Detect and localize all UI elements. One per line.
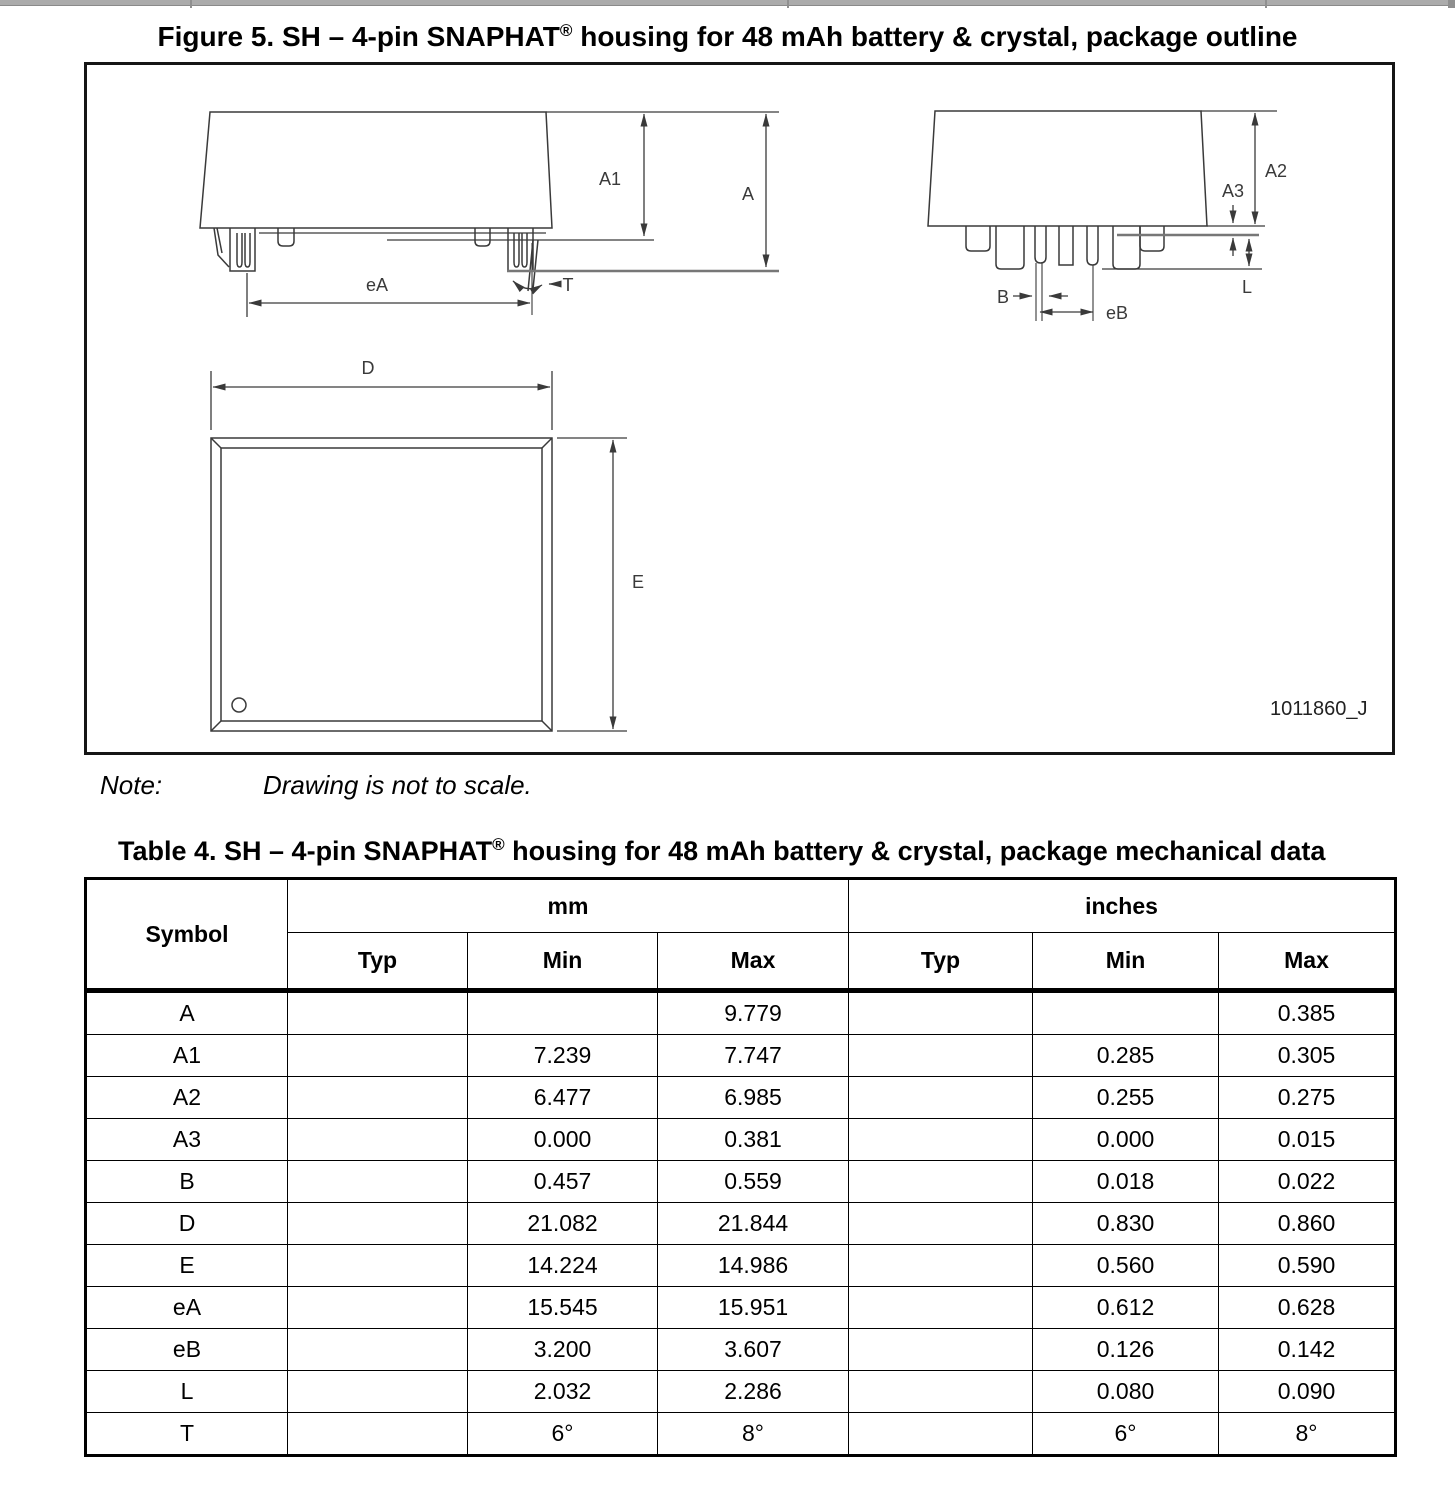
value-cell: 0.080 [1033, 1371, 1219, 1413]
strip-tick [190, 0, 192, 8]
value-cell: 0.000 [1033, 1119, 1219, 1161]
value-cell: 0.018 [1033, 1161, 1219, 1203]
value-cell: 14.986 [658, 1245, 849, 1287]
symbol-cell: E [86, 1245, 288, 1287]
strip-tick [787, 0, 789, 8]
value-cell: 9.779 [658, 991, 849, 1035]
header-symbol: Symbol [86, 879, 288, 991]
header-mm-max: Max [658, 933, 849, 991]
value-cell: 0.142 [1219, 1329, 1396, 1371]
value-cell [288, 1203, 468, 1245]
symbol-cell: B [86, 1161, 288, 1203]
dim-label-a1: A1 [599, 169, 621, 189]
dim-label-eb: eB [1106, 303, 1128, 323]
table-header: Symbol mm inches Typ Min Max Typ Min Max [86, 879, 1396, 991]
value-cell [1033, 991, 1219, 1035]
figure-title: Figure 5. SH – 4-pin SNAPHAT® housing fo… [0, 21, 1455, 53]
end-view-dimensions [1013, 111, 1277, 312]
header-row-groups: Symbol mm inches [86, 879, 1396, 933]
value-cell: 21.082 [468, 1203, 658, 1245]
header-group-mm: mm [288, 879, 849, 933]
value-cell: 0.090 [1219, 1371, 1396, 1413]
symbol-cell: eB [86, 1329, 288, 1371]
header-in-typ: Typ [849, 933, 1033, 991]
table-row: eB3.2003.6070.1260.142 [86, 1329, 1396, 1371]
value-cell: 0.560 [1033, 1245, 1219, 1287]
value-cell [849, 1161, 1033, 1203]
table-row: eA15.54515.9510.6120.628 [86, 1287, 1396, 1329]
strip-tick [1448, 0, 1455, 8]
value-cell: 0.590 [1219, 1245, 1396, 1287]
value-cell: 15.951 [658, 1287, 849, 1329]
value-cell [288, 1161, 468, 1203]
value-cell: 8° [658, 1413, 849, 1456]
value-cell [849, 1413, 1033, 1456]
side-view-dimensions [247, 112, 779, 317]
dim-label-ea: eA [366, 275, 388, 295]
value-cell: 0.559 [658, 1161, 849, 1203]
value-cell [849, 1245, 1033, 1287]
figure-title-main: Figure 5. SH – 4-pin SNAPHAT [157, 21, 559, 52]
pin1-indicator [232, 698, 246, 712]
value-cell: 7.239 [468, 1035, 658, 1077]
value-cell [288, 1371, 468, 1413]
value-cell: 2.286 [658, 1371, 849, 1413]
package-outline-drawing: A1 A eA T [87, 65, 1392, 752]
header-in-max: Max [1219, 933, 1396, 991]
datasheet-page: { "figure": { "title_main": "Figure 5. S… [0, 0, 1455, 1500]
value-cell [849, 1329, 1033, 1371]
strip-tick [1265, 0, 1267, 8]
symbol-cell: L [86, 1371, 288, 1413]
value-cell: 0.285 [1033, 1035, 1219, 1077]
header-mm-min: Min [468, 933, 658, 991]
value-cell: 2.032 [468, 1371, 658, 1413]
note-label: Note: [100, 770, 162, 801]
value-cell: 0.457 [468, 1161, 658, 1203]
value-cell [288, 1413, 468, 1456]
table-title-tail: housing for 48 mAh battery & crystal, pa… [505, 836, 1326, 866]
table-row: L2.0322.2860.0800.090 [86, 1371, 1396, 1413]
value-cell [849, 1371, 1033, 1413]
dim-label-l: L [1242, 277, 1252, 297]
note-text: Drawing is not to scale. [263, 770, 532, 801]
value-cell [849, 1119, 1033, 1161]
value-cell: 0.830 [1033, 1203, 1219, 1245]
side-view-labels: A1 A eA T [366, 169, 754, 295]
value-cell: 0.275 [1219, 1077, 1396, 1119]
table-row: A30.0000.3810.0000.015 [86, 1119, 1396, 1161]
value-cell: 15.545 [468, 1287, 658, 1329]
table-row: T6°8°6°8° [86, 1413, 1396, 1456]
value-cell: 0.612 [1033, 1287, 1219, 1329]
value-cell: 0.381 [658, 1119, 849, 1161]
dim-label-d: D [362, 358, 375, 378]
page-top-edge-artifact [0, 0, 1455, 6]
value-cell: 0.305 [1219, 1035, 1396, 1077]
drawing-reference-code: 1011860_J [1270, 698, 1368, 720]
value-cell: 14.224 [468, 1245, 658, 1287]
value-cell: 0.126 [1033, 1329, 1219, 1371]
value-cell [288, 991, 468, 1035]
figure-title-tail: housing for 48 mAh battery & crystal, pa… [572, 21, 1297, 52]
value-cell: 6.985 [658, 1077, 849, 1119]
table-title: Table 4. SH – 4-pin SNAPHAT® housing for… [118, 836, 1325, 867]
bottom-view [211, 438, 552, 731]
dim-label-a2: A2 [1265, 161, 1287, 181]
table-body: A9.7790.385A17.2397.7470.2850.305A26.477… [86, 991, 1396, 1456]
dim-label-t: T [563, 275, 574, 295]
symbol-cell: eA [86, 1287, 288, 1329]
symbol-cell: A2 [86, 1077, 288, 1119]
header-group-inches: inches [849, 879, 1396, 933]
symbol-cell: T [86, 1413, 288, 1456]
value-cell [468, 991, 658, 1035]
value-cell: 8° [1219, 1413, 1396, 1456]
dim-label-b: B [997, 287, 1009, 307]
registered-trademark-symbol: ® [560, 21, 573, 40]
dim-label-e: E [632, 572, 644, 592]
header-mm-typ: Typ [288, 933, 468, 991]
value-cell: 0.385 [1219, 991, 1396, 1035]
value-cell: 6° [1033, 1413, 1219, 1456]
value-cell [849, 1077, 1033, 1119]
bottom-view-labels: D E [362, 358, 645, 592]
value-cell [288, 1077, 468, 1119]
value-cell: 0.860 [1219, 1203, 1396, 1245]
value-cell [849, 991, 1033, 1035]
registered-trademark-symbol: ® [492, 835, 505, 854]
table-title-main: Table 4. SH – 4-pin SNAPHAT [118, 836, 492, 866]
end-view [928, 111, 1207, 321]
value-cell [288, 1245, 468, 1287]
table-row: A26.4776.9850.2550.275 [86, 1077, 1396, 1119]
table-row: D21.08221.8440.8300.860 [86, 1203, 1396, 1245]
value-cell [288, 1119, 468, 1161]
value-cell [849, 1035, 1033, 1077]
figure-frame: A1 A eA T [84, 62, 1395, 755]
value-cell [288, 1329, 468, 1371]
table-row: E14.22414.9860.5600.590 [86, 1245, 1396, 1287]
bottom-view-dimensions [211, 371, 627, 731]
value-cell: 21.844 [658, 1203, 849, 1245]
value-cell: 6.477 [468, 1077, 658, 1119]
value-cell: 3.200 [468, 1329, 658, 1371]
table-row: B0.4570.5590.0180.022 [86, 1161, 1396, 1203]
mechanical-data-table: Symbol mm inches Typ Min Max Typ Min Max… [84, 877, 1397, 1457]
table-row: A9.7790.385 [86, 991, 1396, 1035]
value-cell: 0.628 [1219, 1287, 1396, 1329]
value-cell [849, 1203, 1033, 1245]
symbol-cell: A [86, 991, 288, 1035]
dim-label-a: A [742, 184, 754, 204]
end-view-labels: A2 A3 L B eB [997, 161, 1287, 323]
value-cell [288, 1035, 468, 1077]
value-cell: 0.000 [468, 1119, 658, 1161]
value-cell: 6° [468, 1413, 658, 1456]
table-row: A17.2397.7470.2850.305 [86, 1035, 1396, 1077]
symbol-cell: A3 [86, 1119, 288, 1161]
value-cell: 0.255 [1033, 1077, 1219, 1119]
value-cell: 3.607 [658, 1329, 849, 1371]
value-cell: 0.022 [1219, 1161, 1396, 1203]
value-cell [288, 1287, 468, 1329]
header-in-min: Min [1033, 933, 1219, 991]
dim-label-a3: A3 [1222, 181, 1244, 201]
symbol-cell: D [86, 1203, 288, 1245]
symbol-cell: A1 [86, 1035, 288, 1077]
value-cell: 0.015 [1219, 1119, 1396, 1161]
value-cell: 7.747 [658, 1035, 849, 1077]
value-cell [849, 1287, 1033, 1329]
